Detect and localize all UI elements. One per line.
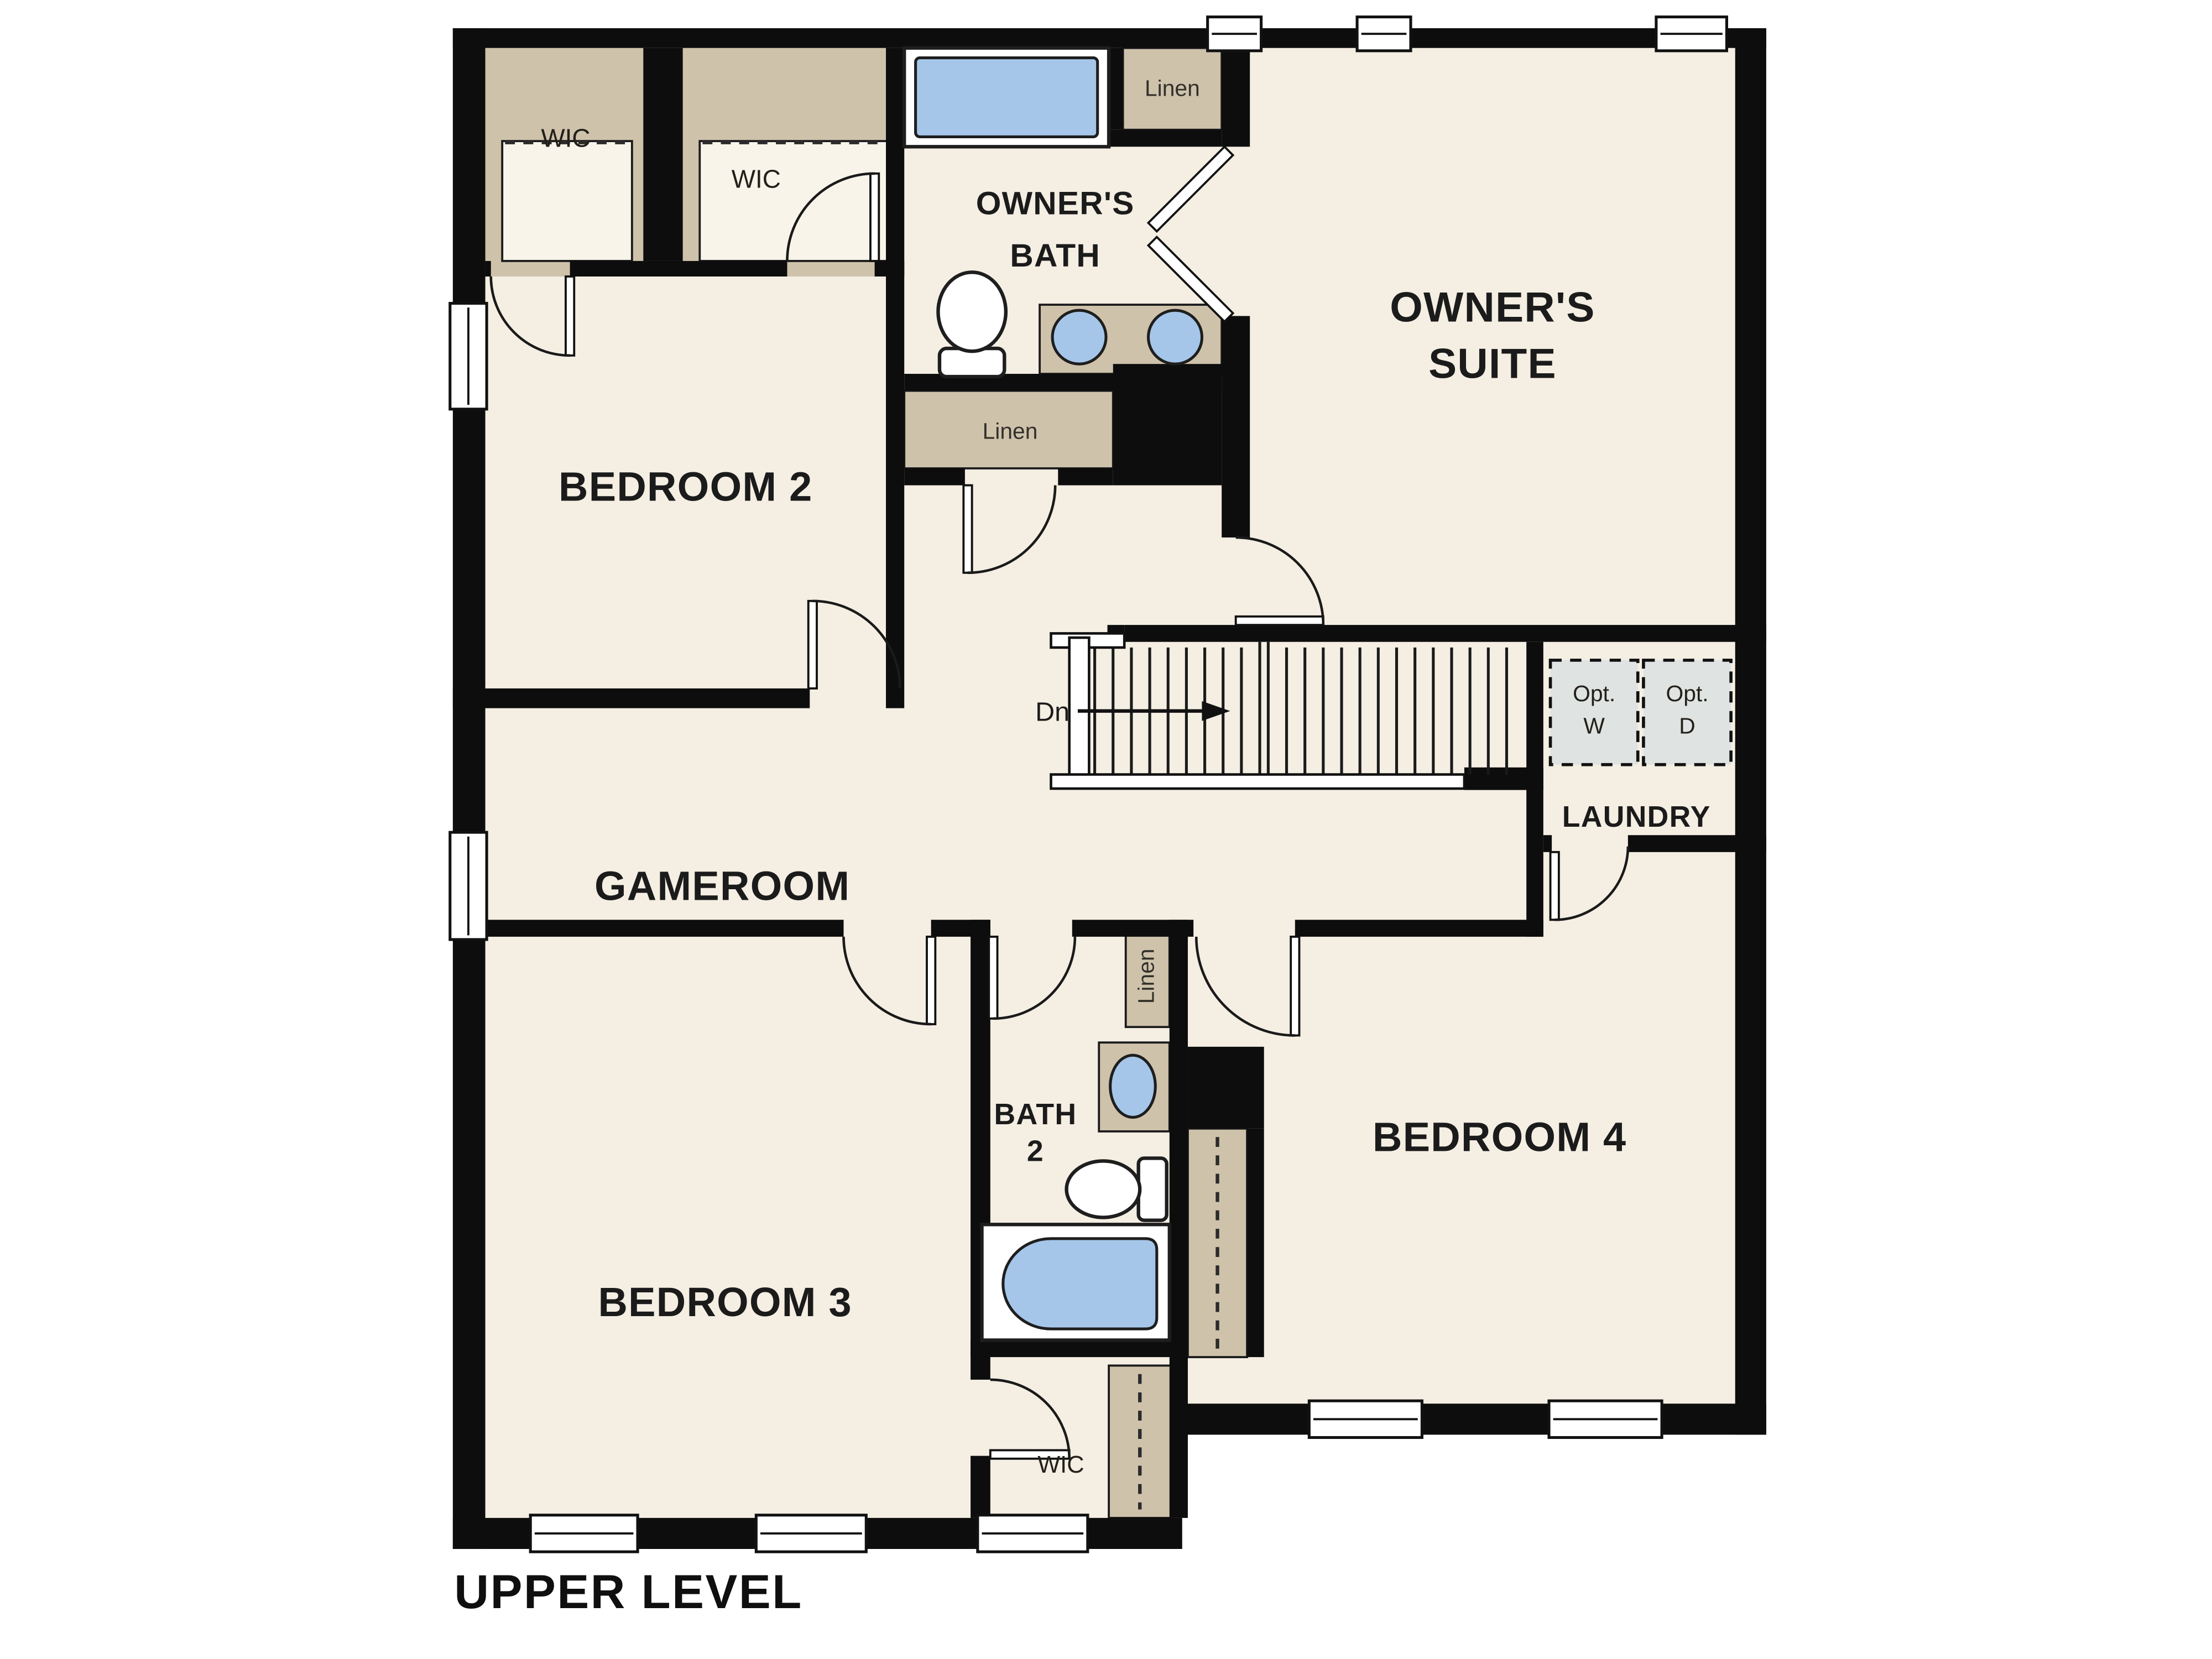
wall-outer-bottom-right <box>1182 1404 1766 1434</box>
bedroom4-label: BEDROOM 4 <box>1373 1114 1626 1160</box>
wall-bedroom4-closet <box>1247 1129 1264 1357</box>
bedroom3-door-leaf <box>927 937 935 1024</box>
wall-center-vertical <box>886 48 904 708</box>
wall-wic-divider <box>643 48 682 261</box>
toilet2-bowl <box>1067 1161 1140 1217</box>
wic2-door-leaf <box>870 174 879 261</box>
wall-linen-left-sliver <box>1109 48 1123 130</box>
tub <box>1003 1239 1157 1329</box>
linen-hall-label: Linen <box>983 418 1038 444</box>
laundry-label: LAUNDRY <box>1562 801 1711 833</box>
wall-stairwell-right <box>1526 642 1543 937</box>
gameroom-label: GAMEROOM <box>594 863 850 909</box>
toilet2-tank <box>1139 1158 1167 1220</box>
wall-under-top-linen <box>1109 130 1222 147</box>
wic2-label: WIC <box>732 164 781 193</box>
wall-wic-bottom-b <box>570 261 787 276</box>
linen-owners-bath-label: Linen <box>1145 75 1200 101</box>
owners-bath-label-line1: OWNER'S <box>976 186 1135 222</box>
wall-outer-top <box>453 28 1766 48</box>
wall-wic-bottom-a <box>486 261 491 276</box>
wall-outer-right <box>1735 28 1766 1434</box>
opt-washer-box <box>1551 660 1638 765</box>
wall-bed4-door-stub <box>1188 920 1193 937</box>
owners-suite-label-line1: OWNER'S <box>1390 284 1595 331</box>
owners-bath-door-leaf <box>963 486 972 573</box>
opt-dryer-label-line1: Opt. <box>1666 681 1708 706</box>
wall-laundry-bottom-b <box>1628 835 1766 852</box>
wic1-floor <box>502 141 632 261</box>
chase-bath2 <box>1188 1047 1264 1129</box>
vanity-sink-right <box>1149 310 1202 364</box>
wic2-floor <box>700 141 893 261</box>
page-title: UPPER LEVEL <box>454 1565 802 1619</box>
floorplan-page: WIC WIC Linen OWNER'S BATH OWNER'S SUITE… <box>0 0 2212 1659</box>
bedroom3-label: BEDROOM 3 <box>598 1279 852 1325</box>
suite-door-leaf <box>1236 617 1323 625</box>
wall-suite-left-mid <box>1222 316 1250 538</box>
wall-bedroom4-top <box>1295 920 1543 937</box>
linen-bath2-label: Linen <box>1134 948 1159 1004</box>
opt-washer-label-line1: Opt. <box>1573 681 1615 706</box>
wic1-door-leaf <box>566 276 574 356</box>
opt-dryer-box <box>1644 660 1731 765</box>
wic3-strip <box>1109 1365 1171 1518</box>
laundry-door-leaf <box>1551 852 1559 920</box>
opt-dryer-label-line2: D <box>1679 713 1695 739</box>
opt-washer-label-line2: W <box>1583 713 1605 739</box>
wall-bath-entry-a <box>904 468 965 486</box>
wic3-label: WIC <box>1037 1452 1084 1478</box>
bath2-label-line1: BATH <box>994 1098 1077 1131</box>
toilet1-bowl <box>938 272 1005 351</box>
upper-level-floorplan: WIC WIC Linen OWNER'S BATH OWNER'S SUITE… <box>0 0 2212 1659</box>
shower-pan <box>916 58 1098 137</box>
bath2-label-line2: 2 <box>1027 1135 1044 1167</box>
bedroom4-door-leaf <box>1291 937 1299 1036</box>
wall-suite-bottom <box>1124 625 1766 642</box>
wall-outer-left <box>453 28 486 1549</box>
bath2-door-leaf <box>989 937 997 1019</box>
wic1-label: WIC <box>541 123 590 152</box>
wall-wic-bottom-c <box>875 261 905 276</box>
owners-suite-label-line2: SUITE <box>1428 341 1557 388</box>
owners-bath-label-line2: BATH <box>1010 238 1100 274</box>
wall-gameroom-bottom-a <box>453 920 844 937</box>
wall-laundry-bottom-a <box>1543 835 1552 852</box>
stairs-dn-label: Dn <box>1035 697 1070 727</box>
wall-bedroom2-bottom <box>453 688 810 708</box>
wall-bath2-bottom <box>971 1340 1188 1357</box>
wall-bath2-right <box>1170 920 1188 1518</box>
wall-bath-entry-b <box>1058 468 1113 486</box>
bedroom2-door-leaf <box>808 601 817 688</box>
bedroom2-label: BEDROOM 2 <box>559 464 812 510</box>
chase-owners-bath <box>1113 364 1222 485</box>
vanity-sink-left <box>1052 310 1106 364</box>
stair-rail-bottom <box>1051 775 1464 789</box>
wall-bedroom3-right-b <box>971 1456 990 1518</box>
bath2-sink <box>1110 1055 1156 1117</box>
